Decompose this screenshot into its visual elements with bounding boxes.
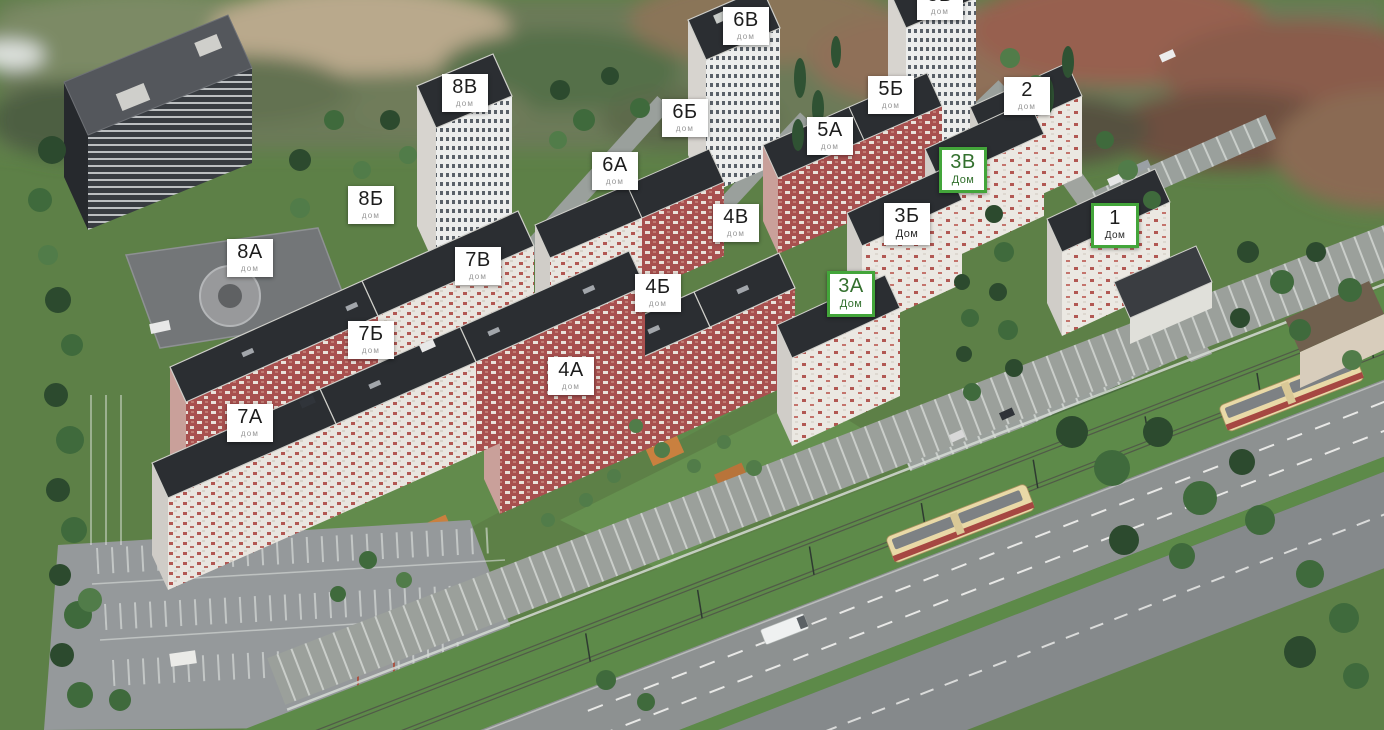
building-label-7А[interactable]: 7Адом [227, 404, 273, 442]
building-number: 3А [836, 275, 866, 297]
building-sublabel: дом [925, 7, 955, 16]
building-label-5А[interactable]: 5Адом [807, 117, 853, 155]
building-number: 5В [925, 0, 955, 6]
building-number: 1 [1100, 207, 1130, 229]
building-sublabel: дом [463, 272, 493, 281]
building-label-5Б[interactable]: 5Бдом [868, 76, 914, 114]
building-label-8Б[interactable]: 8Бдом [348, 186, 394, 224]
building-label-5В[interactable]: 5Вдом [917, 0, 963, 20]
building-sublabel: дом [1012, 102, 1042, 111]
building-label-8А[interactable]: 8Адом [227, 239, 273, 277]
building-sublabel: дом [235, 264, 265, 273]
building-sublabel: дом [815, 142, 845, 151]
building-label-6В[interactable]: 6Вдом [723, 7, 769, 45]
building-sublabel: дом [235, 429, 265, 438]
building-number: 4А [556, 359, 586, 381]
building-sublabel: дом [721, 229, 751, 238]
building-label-3А[interactable]: 3АДом [827, 271, 875, 317]
building-label-1[interactable]: 1Дом [1091, 203, 1139, 248]
building-number: 8Б [356, 188, 386, 210]
building-sublabel: дом [450, 99, 480, 108]
masterplan: 5Вдом6Вдом8Вдом5Бдом2дом6Бдом5Адом3ВДом6… [0, 0, 1384, 730]
building-sublabel: дом [731, 32, 761, 41]
building-label-8В[interactable]: 8Вдом [442, 74, 488, 112]
building-label-3Б[interactable]: 3БДом [884, 203, 930, 245]
building-number: 2 [1012, 79, 1042, 101]
building-sublabel: дом [600, 177, 630, 186]
building-label-2[interactable]: 2дом [1004, 77, 1050, 115]
building-number: 7Б [356, 323, 386, 345]
building-sublabel: дом [356, 211, 386, 220]
building-number: 4Б [643, 276, 673, 298]
building-number: 8А [235, 241, 265, 263]
building-sublabel: дом [556, 382, 586, 391]
building-sublabel: Дом [1100, 230, 1130, 242]
building-number: 4В [721, 206, 751, 228]
building-label-4В[interactable]: 4Вдом [713, 204, 759, 242]
building-sublabel: дом [876, 101, 906, 110]
building-sublabel: Дом [836, 298, 866, 311]
building-label-6Б[interactable]: 6Бдом [662, 99, 708, 137]
building-number: 5А [815, 119, 845, 141]
building-number: 3Б [892, 205, 922, 227]
building-number: 3В [948, 151, 978, 173]
building-sublabel: Дом [948, 174, 978, 187]
building-label-3В[interactable]: 3ВДом [939, 147, 987, 193]
building-label-4А[interactable]: 4Адом [548, 357, 594, 395]
building-sublabel: дом [670, 124, 700, 133]
building-sublabel: дом [643, 299, 673, 308]
building-number: 5Б [876, 78, 906, 100]
building-number: 7А [235, 406, 265, 428]
building-label-4Б[interactable]: 4Бдом [635, 274, 681, 312]
building-number: 8В [450, 76, 480, 98]
building-labels-layer: 5Вдом6Вдом8Вдом5Бдом2дом6Бдом5Адом3ВДом6… [0, 0, 1384, 730]
building-number: 6А [600, 154, 630, 176]
building-sublabel: дом [356, 346, 386, 355]
building-label-7В[interactable]: 7Вдом [455, 247, 501, 285]
building-label-7Б[interactable]: 7Бдом [348, 321, 394, 359]
building-label-6А[interactable]: 6Адом [592, 152, 638, 190]
building-number: 6Б [670, 101, 700, 123]
building-number: 6В [731, 9, 761, 31]
building-sublabel: Дом [892, 228, 922, 241]
building-number: 7В [463, 249, 493, 271]
